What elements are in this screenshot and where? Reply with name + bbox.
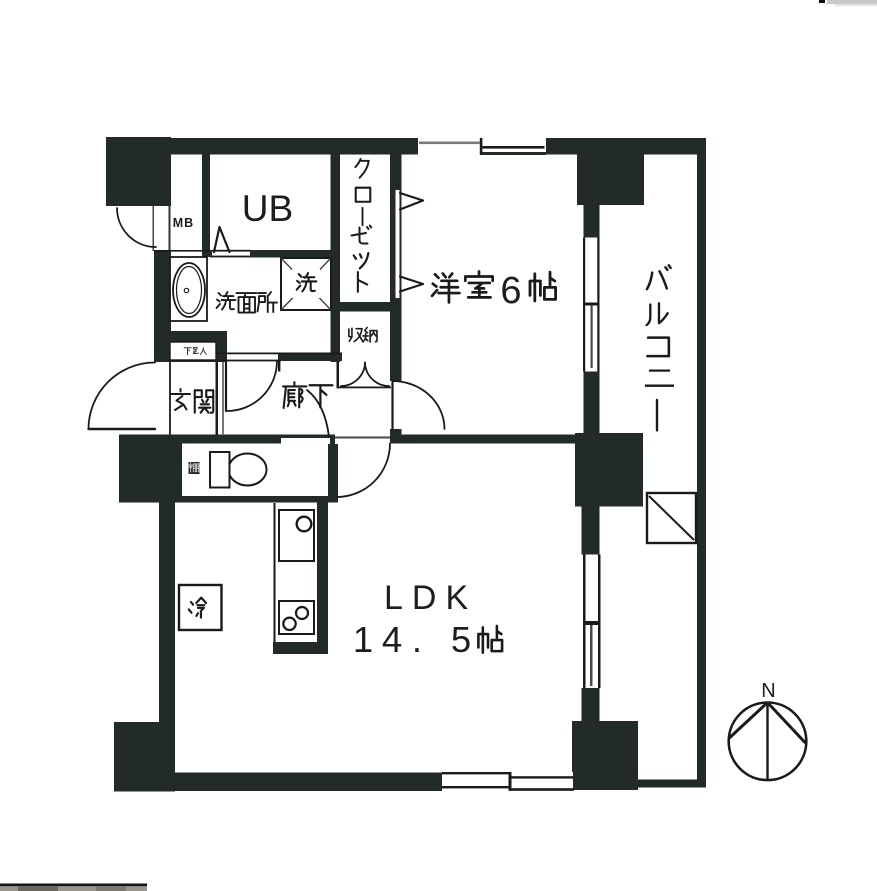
svg-text:.: . [412,619,422,660]
svg-text:UB: UB [242,188,293,229]
svg-text:1: 1 [353,619,373,660]
svg-text:4: 4 [382,619,402,660]
svg-text:N: N [761,680,775,702]
svg-text:LDK: LDK [384,579,477,617]
svg-text:MB: MB [173,216,194,230]
svg-text:5: 5 [451,619,471,660]
svg-text:6: 6 [500,270,521,312]
